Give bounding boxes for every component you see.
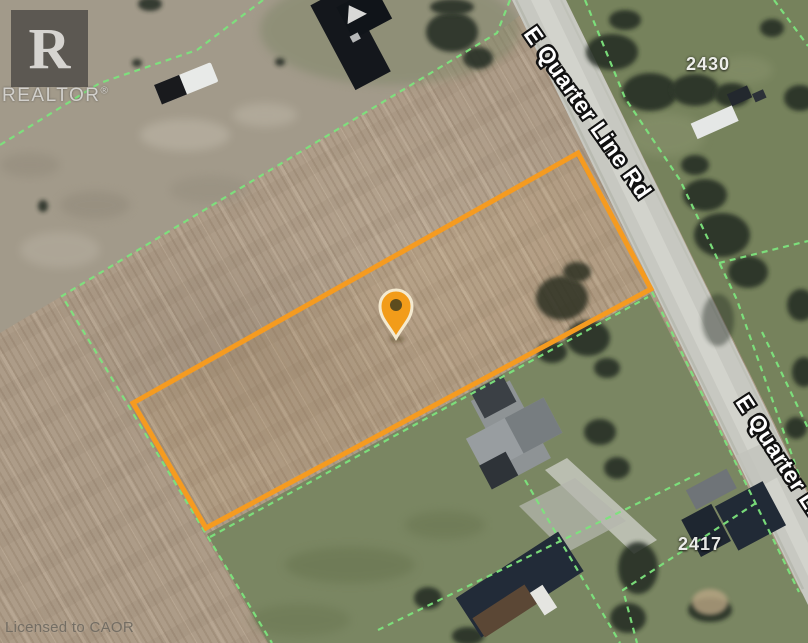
realtor-wordmark: REALTOR® xyxy=(2,85,109,107)
address-label-2430: 2430 xyxy=(686,54,730,75)
registered-symbol: ® xyxy=(101,86,110,97)
dirt-patch-2417 xyxy=(692,589,728,615)
address-label-2417: 2417 xyxy=(678,534,722,555)
realtor-wordmark-text: REALTOR xyxy=(2,85,101,106)
license-watermark: Licensed to CAOR xyxy=(5,619,134,636)
realtor-logo: R xyxy=(11,10,88,87)
realtor-logo-r: R xyxy=(29,20,71,78)
satellite-map-canvas: E Quarter Line Rd E Quarter Line Rd 2430… xyxy=(0,0,808,643)
